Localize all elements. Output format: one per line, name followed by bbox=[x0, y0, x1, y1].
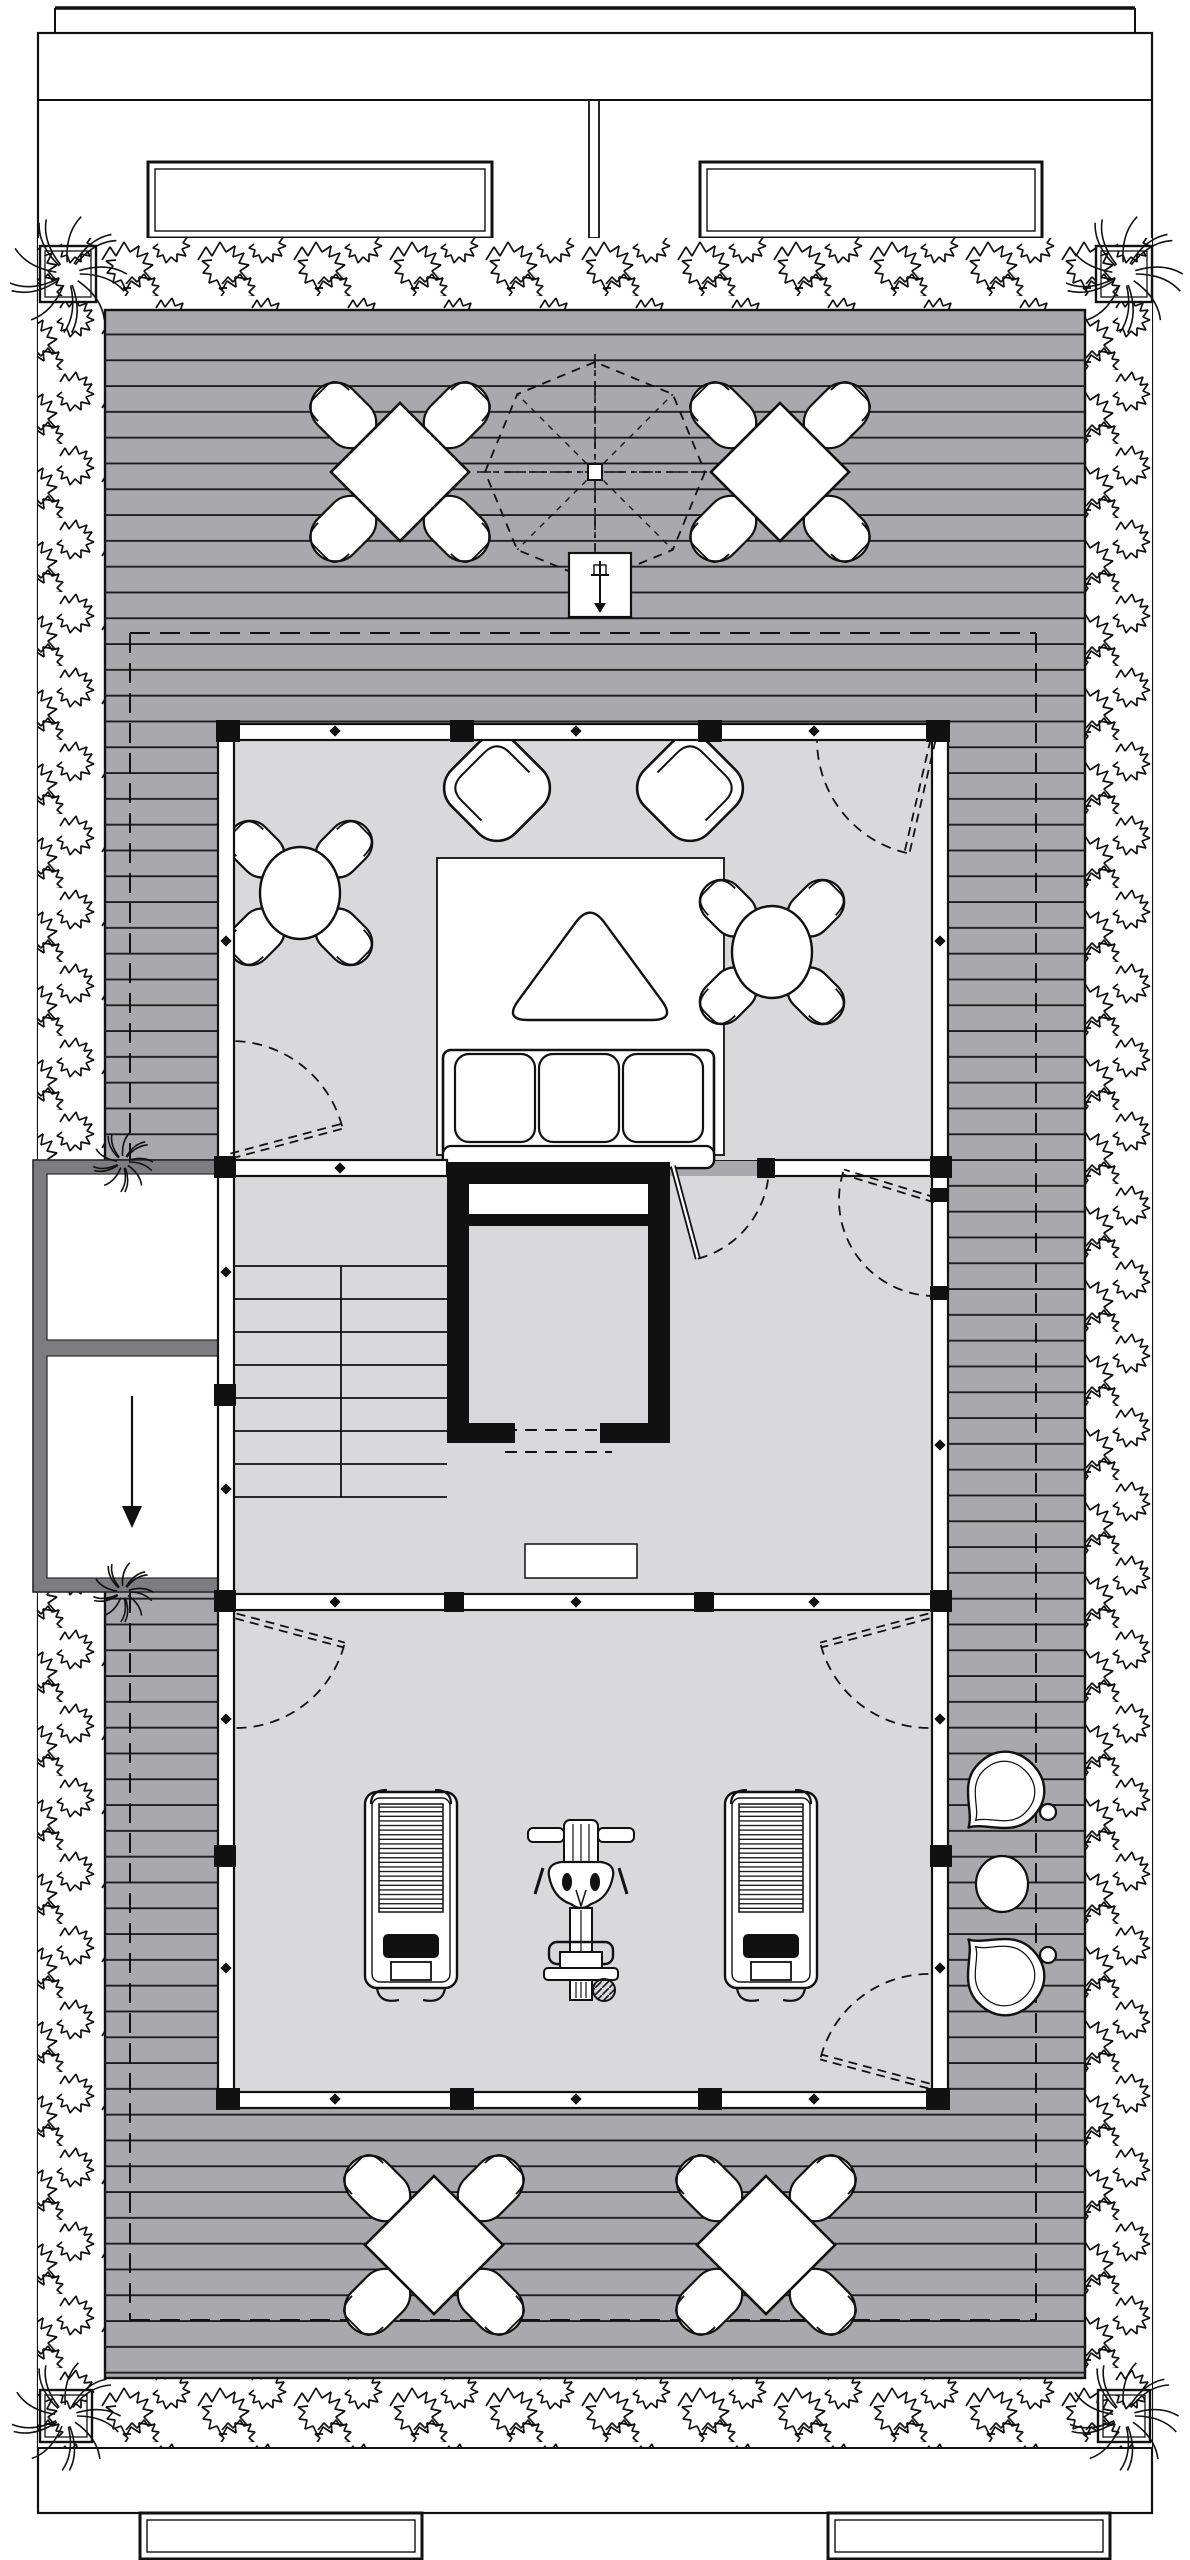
roof-skylight-left bbox=[148, 162, 492, 238]
lower-roof-structure-left bbox=[140, 2513, 422, 2559]
lower-roof-structure-right bbox=[828, 2513, 1110, 2559]
treadmill-left bbox=[365, 1790, 457, 2001]
plan-root bbox=[10, 8, 1183, 2559]
terrace-dining-set-1 bbox=[300, 372, 499, 571]
planting-bed-bottom bbox=[105, 2378, 1085, 2448]
core-doormat bbox=[525, 1544, 637, 1578]
planting-bed-right bbox=[1085, 238, 1152, 2448]
terrace-dining-set-2 bbox=[680, 372, 879, 571]
glass-wall-top bbox=[218, 724, 948, 740]
deck-pin-ring-upper bbox=[1040, 1804, 1056, 1820]
annex-room-upper bbox=[47, 1174, 218, 1340]
terrace-dining-set-3 bbox=[334, 2145, 533, 2344]
treadmill-right bbox=[725, 1790, 817, 2001]
planting-bed-top bbox=[105, 238, 1085, 310]
glass-wall-bottom bbox=[218, 2092, 948, 2108]
roof-terrace-floor-plan bbox=[0, 0, 1190, 2560]
glass-wall-left bbox=[218, 724, 234, 2108]
round-table bbox=[732, 906, 812, 998]
elevator-machine-slot bbox=[469, 1184, 648, 1214]
three-seat-sofa bbox=[443, 1050, 714, 1168]
elevator-door-gap bbox=[515, 1423, 600, 1443]
deck-side-table bbox=[976, 1856, 1028, 1912]
glass-wall-divider-lounge-b bbox=[769, 1160, 932, 1176]
roof-skylight-right bbox=[700, 162, 1042, 238]
page bbox=[0, 0, 1190, 2560]
elevator-cab bbox=[469, 1226, 648, 1423]
round-table bbox=[260, 847, 340, 939]
glass-wall-right bbox=[932, 724, 948, 2108]
terrace-dining-set-4 bbox=[666, 2145, 865, 2344]
deck-pin-ring-lower bbox=[1040, 1947, 1056, 1963]
